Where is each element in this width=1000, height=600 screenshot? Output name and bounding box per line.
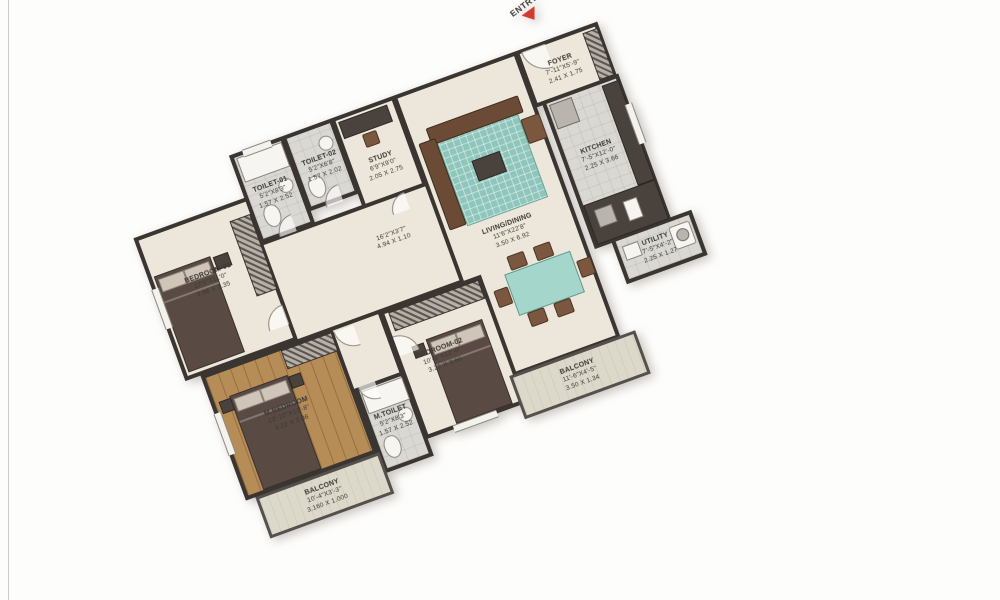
pillow xyxy=(234,389,264,411)
page-border-line xyxy=(8,0,9,600)
entry-marker: ENTRY xyxy=(508,0,547,29)
pillow xyxy=(260,380,290,402)
pillow xyxy=(158,270,188,292)
floor-plan: BEDROOM-01 12'0"X11'0" 3.66 X 3.35 TOILE… xyxy=(118,10,767,572)
